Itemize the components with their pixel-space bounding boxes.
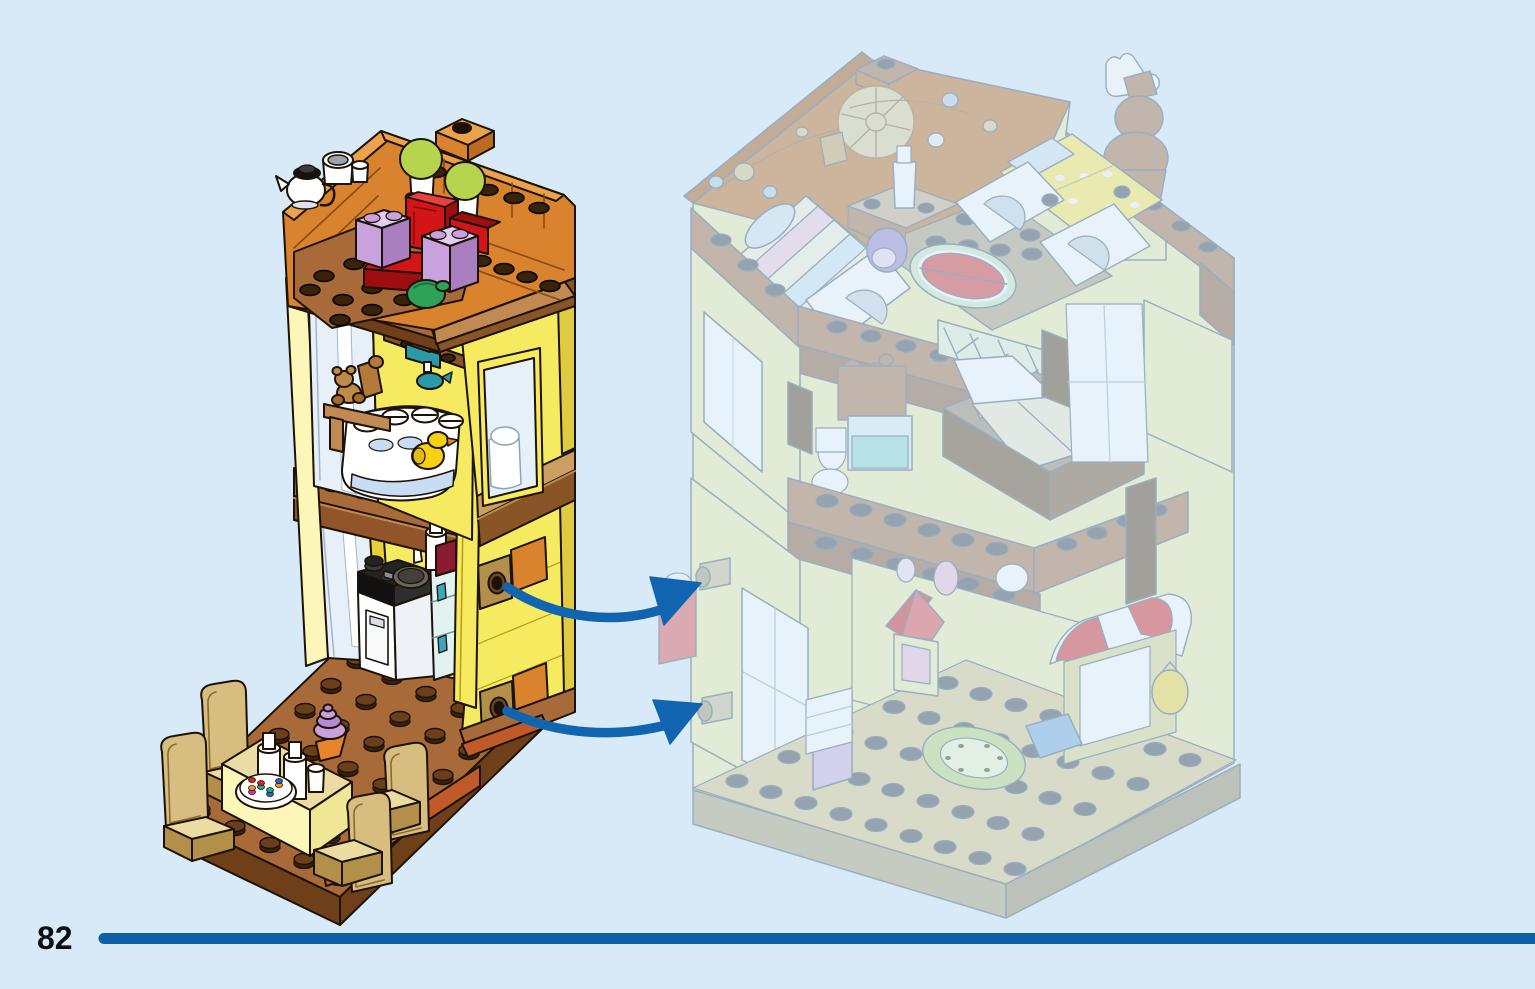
svg-text:82: 82: [37, 920, 73, 956]
